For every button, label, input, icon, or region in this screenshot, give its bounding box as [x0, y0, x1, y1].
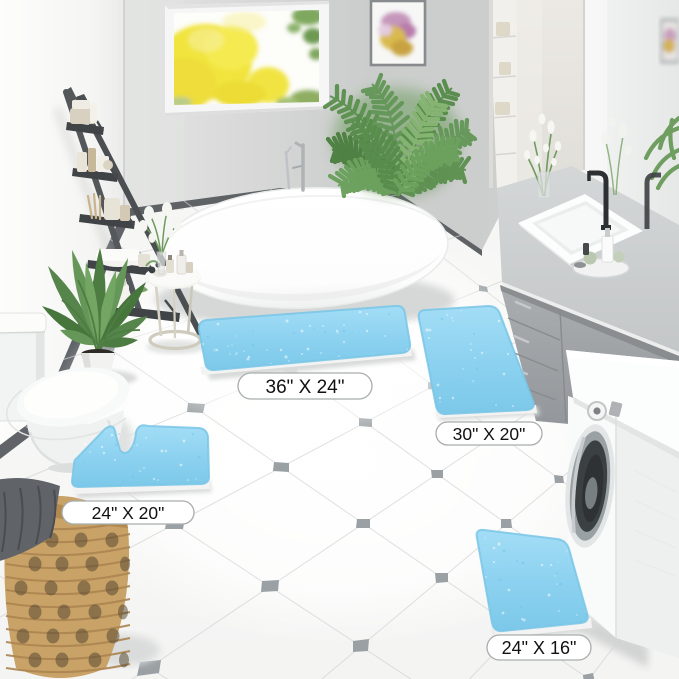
svg-text:24" X 16": 24" X 16" — [502, 638, 577, 658]
svg-text:36" X 24": 36" X 24" — [266, 377, 345, 398]
svg-text:30" X 20": 30" X 20" — [453, 424, 526, 444]
svg-text:24" X 20": 24" X 20" — [92, 503, 165, 523]
